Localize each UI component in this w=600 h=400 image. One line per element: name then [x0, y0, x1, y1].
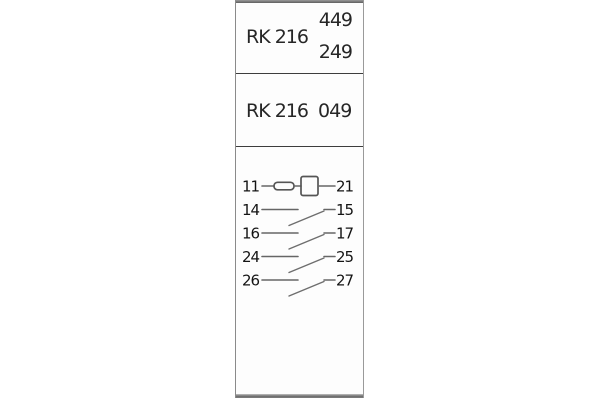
relay-label-panel: RK 216 449 249 RK 216 049 11 21	[235, 0, 364, 398]
terminal-label: 26	[242, 272, 260, 290]
contact-blade	[289, 211, 324, 226]
diagram-row-coil: 11 21	[242, 177, 354, 196]
terminal-label: 16	[242, 225, 260, 243]
diagram-row-contact: 14 15	[242, 201, 354, 226]
terminal-label: 27	[336, 272, 354, 290]
diagram-row-contact: 26 27	[242, 272, 354, 297]
section-type-label: RK 216 049	[236, 74, 363, 147]
rectifier-symbol	[274, 182, 294, 190]
terminal-label: 21	[336, 178, 354, 196]
code-bottom: 249	[319, 41, 352, 63]
terminal-label: 15	[336, 201, 354, 219]
model-number: RK 216	[246, 26, 308, 48]
terminal-label: 17	[336, 225, 354, 243]
diagram-row-contact: 24 25	[242, 248, 354, 273]
coil-symbol	[301, 177, 318, 196]
terminal-label: 11	[242, 178, 260, 196]
section-model-codes: RK 216 449 249	[236, 3, 363, 74]
contact-blade	[289, 235, 324, 250]
terminal-label: 25	[336, 248, 354, 266]
contact-blade	[289, 258, 324, 273]
section-connection-diagram: 11 21 14 15 16	[236, 147, 363, 394]
connection-diagram: 11 21 14 15 16	[236, 147, 363, 394]
terminal-label: 14	[242, 201, 260, 219]
page-background: RK 216 449 249 RK 216 049 11 21	[0, 0, 600, 400]
contact-blade	[289, 282, 324, 297]
diagram-row-contact: 16 17	[242, 225, 354, 250]
type-label: RK 216 049	[246, 100, 351, 122]
panel-bottom-band	[236, 394, 363, 398]
code-top: 449	[319, 9, 352, 31]
terminal-label: 24	[242, 248, 260, 266]
